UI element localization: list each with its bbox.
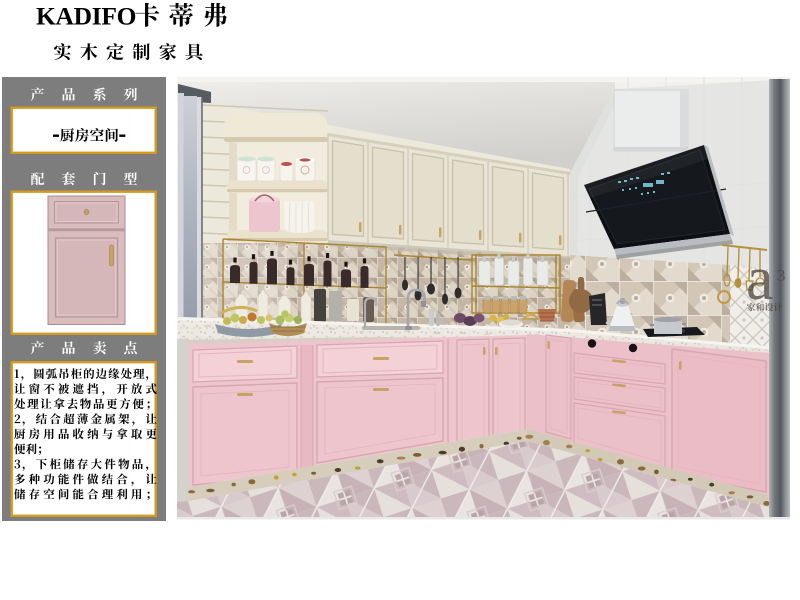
svg-text:3: 3 bbox=[777, 266, 786, 285]
svg-text:KADIFO: KADIFO bbox=[36, 2, 136, 31]
svg-text:a: a bbox=[746, 245, 774, 313]
